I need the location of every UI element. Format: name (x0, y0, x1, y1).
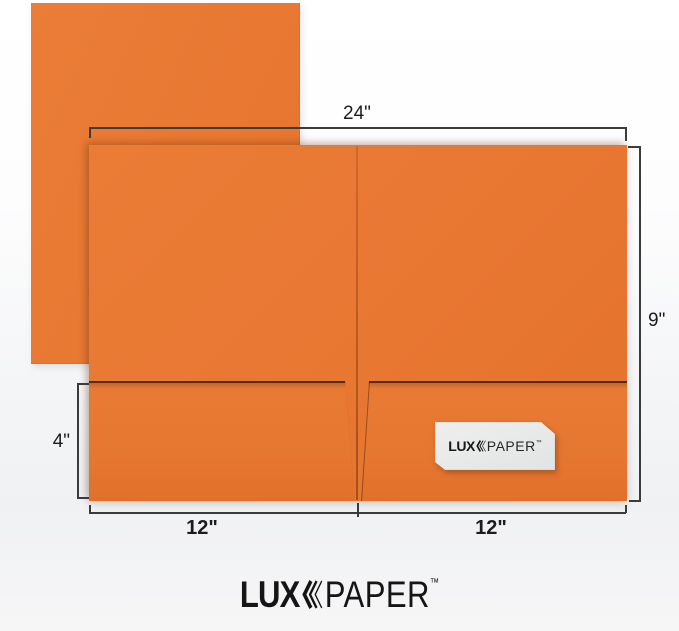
dimension-tick (629, 500, 641, 502)
dimension-tick (625, 505, 627, 513)
lux-chevron-icon (476, 440, 486, 452)
dimension-tick (77, 383, 89, 385)
trademark-symbol: ™ (430, 578, 439, 589)
lux-chevron-icon (301, 580, 323, 609)
folder-center-crease (356, 146, 358, 500)
dimension-line (77, 383, 79, 498)
pocket-shadow (89, 383, 356, 389)
pocket-slant-edge (345, 381, 357, 502)
dimension-pocket-label: 4" (44, 432, 70, 451)
card-lux-text: LUX (448, 439, 475, 453)
dimension-tick (77, 497, 89, 499)
product-image: LUX PAPER ™ 24" 9" (0, 0, 679, 631)
open-folder: LUX PAPER ™ (89, 145, 627, 501)
dimension-tick (625, 127, 627, 141)
dimension-tick (628, 146, 640, 148)
dimension-right-panel-label: 12" (467, 518, 515, 538)
pocket-slant-edge (360, 381, 370, 502)
logo-lux-text: LUX (240, 576, 300, 613)
dimension-tick (89, 127, 91, 138)
pocket-shadow (360, 383, 627, 389)
dimension-width-label: 24" (329, 104, 385, 123)
dimension-tick (89, 505, 91, 513)
business-card-face: LUX PAPER ™ (435, 422, 555, 470)
card-paper-text: PAPER (487, 439, 536, 453)
dimension-line (639, 146, 641, 501)
folder-left-pocket (89, 381, 356, 501)
logo-paper-text: PAPER (325, 576, 430, 613)
dimension-tick (357, 503, 359, 517)
card-lux-paper-logo: LUX PAPER ™ (448, 439, 541, 453)
dimension-line (89, 127, 626, 129)
lux-paper-logo: LUX PAPER ™ (54, 576, 624, 613)
trademark-symbol: ™ (536, 440, 542, 446)
dimension-height-label: 9" (648, 311, 676, 330)
dimension-left-panel-label: 12" (178, 518, 226, 538)
business-card: LUX PAPER ™ (435, 422, 555, 470)
